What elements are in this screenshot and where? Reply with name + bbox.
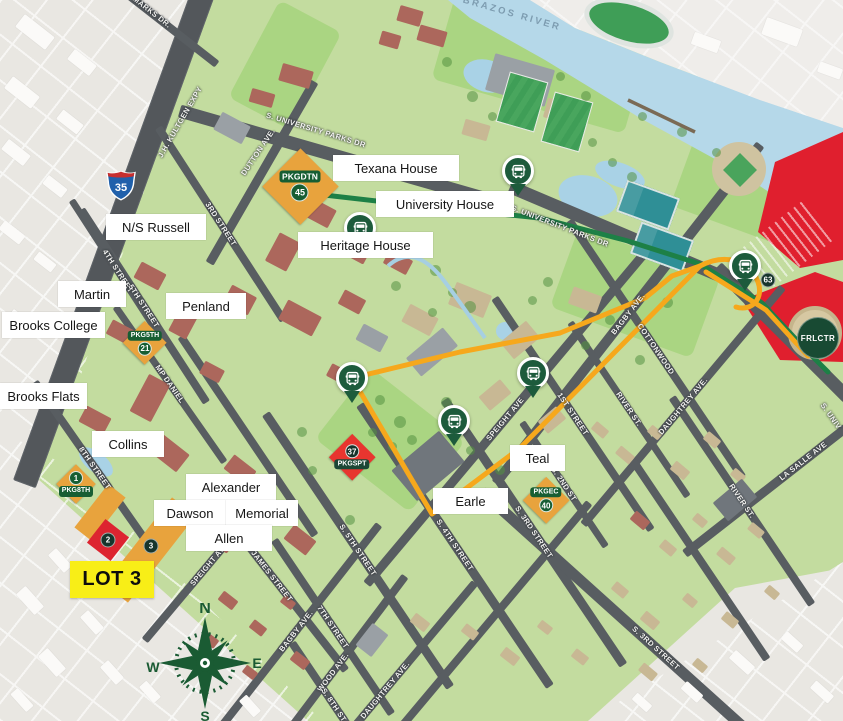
parking-sign-pkgec: PKGEC40 (521, 475, 571, 525)
bus-stop-pin (517, 357, 549, 389)
building-label-penland: Penland (166, 293, 246, 319)
tree (442, 57, 452, 67)
parking-sign-pkgspt: 37PKGSPT (327, 432, 377, 482)
tree (608, 158, 617, 167)
tree (428, 308, 437, 317)
tree (638, 112, 647, 121)
frlctr-badge: FRLCTR (797, 317, 839, 359)
building-label-collins: Collins (92, 431, 164, 457)
tree (466, 446, 475, 455)
bus-stop-circle (517, 357, 549, 389)
tree (556, 72, 565, 81)
marker-3: 3 (144, 539, 159, 554)
tree (588, 138, 597, 147)
building (764, 584, 781, 600)
svg-text:N: N (199, 603, 211, 617)
svg-text:35: 35 (115, 182, 127, 194)
bus-stop-circle (729, 250, 761, 282)
pin-tail (525, 386, 541, 398)
tree (581, 91, 591, 101)
building-label-n-s-russell: N/S Russell (106, 214, 206, 240)
building-label-dawson: Dawson (154, 500, 226, 526)
lot3-highlight: LOT 3 (70, 561, 154, 598)
bus-stop-pin (438, 405, 470, 437)
campus-map: LOT 3 FRLCTR MARKS DR.J.H. KULTGEN EXPYD… (0, 0, 843, 721)
tree (495, 465, 505, 475)
svg-text:W: W (146, 659, 160, 675)
parking-code-pill: PKGEC (531, 487, 562, 497)
parking-space-count: 40 (539, 499, 553, 513)
pin-tail (446, 434, 462, 446)
building-label-allen: Allen (186, 525, 272, 551)
pin-tail (344, 391, 360, 403)
marker-63: 63 (761, 273, 776, 288)
bus-stop-pin (729, 250, 761, 282)
tree (712, 148, 721, 157)
tree (543, 277, 553, 287)
bus-stop-circle (438, 405, 470, 437)
parking-space-count: 1 (69, 471, 83, 485)
parking-space-count: 45 (291, 184, 309, 202)
building-label-alexander: Alexander (186, 474, 276, 500)
tree (388, 442, 397, 451)
bus-stop-circle (502, 155, 534, 187)
parking-code-pill: PKGDTN (279, 170, 321, 182)
building-label-brooks-college: Brooks College (2, 312, 105, 338)
tree (677, 127, 687, 137)
parking-code-pill: PKG8TH (59, 486, 93, 496)
parking-code-pill: PKGSPT (335, 459, 370, 469)
pin-tail (737, 279, 753, 291)
tree (430, 265, 441, 276)
bus-stop-circle (336, 362, 368, 394)
tree (635, 355, 645, 365)
marker-2: 2 (101, 533, 116, 548)
building-label-heritage-house: Heritage House (298, 232, 433, 258)
tree (297, 427, 307, 437)
bus-stop-pin (502, 155, 534, 187)
building-label-martin: Martin (58, 281, 126, 307)
building-label-brooks-flats: Brooks Flats (0, 383, 87, 409)
tree (407, 435, 417, 445)
building-label-teal: Teal (510, 445, 565, 471)
tree (581, 341, 590, 350)
compass-rose: N E S W (145, 603, 265, 721)
bus-icon (736, 257, 755, 276)
interstate-35-shield: 35 (106, 170, 136, 202)
bus-icon (445, 412, 464, 431)
parking-sign-pkg5th: PKG5TH21 (122, 320, 169, 367)
tree (488, 112, 497, 121)
tree (467, 91, 478, 102)
parking-code-pill: PKG5TH (128, 330, 162, 340)
building-label-texana-house: Texana House (333, 155, 459, 181)
tree (464, 301, 476, 313)
tree (345, 515, 355, 525)
tree (528, 296, 537, 305)
tree (391, 281, 401, 291)
tree (375, 395, 385, 405)
building (638, 662, 658, 681)
svg-text:S: S (200, 708, 209, 721)
tree (448, 288, 457, 297)
svg-text:E: E (252, 655, 261, 671)
parking-space-count: 21 (138, 342, 152, 356)
bus-icon (343, 369, 362, 388)
tree (394, 416, 406, 428)
building-label-earle: Earle (433, 488, 508, 514)
parking-space-count: 37 (345, 444, 359, 458)
parking-sign-pkg8th: 1PKG8TH (55, 463, 97, 505)
tree (627, 172, 637, 182)
parking-sign-pkgdtn: PKGDTN45 (260, 146, 341, 227)
tree (662, 297, 673, 308)
building-label-memorial: Memorial (226, 500, 298, 526)
bus-icon (509, 162, 528, 181)
bus-icon (524, 364, 543, 383)
bus-stop-pin (336, 362, 368, 394)
tree (308, 466, 317, 475)
building-label-university-house: University House (376, 191, 514, 217)
